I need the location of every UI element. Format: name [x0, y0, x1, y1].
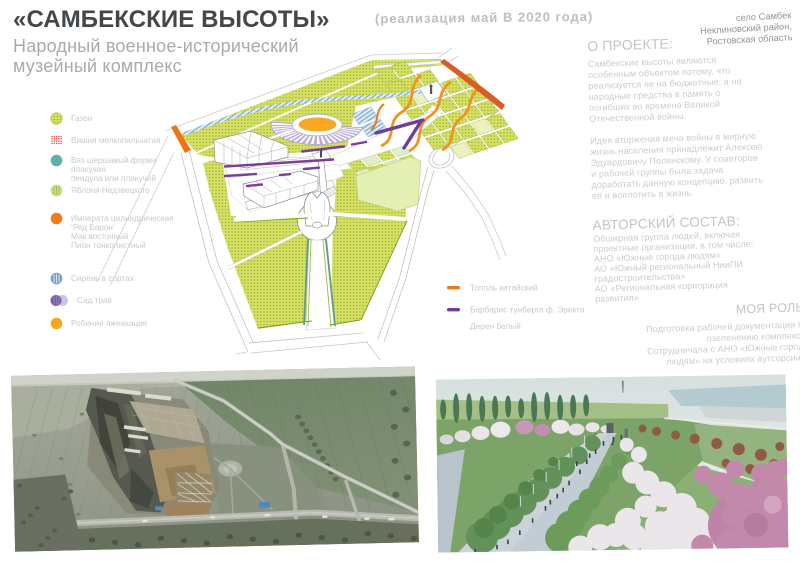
svg-text:Барбарис тунберга ф. Эректа: Барбарис тунберга ф. Эректа — [470, 305, 585, 315]
svg-text:Дерен белый: Дерен белый — [470, 321, 521, 331]
svg-text:Тополь китайский: Тополь китайский — [470, 283, 538, 293]
